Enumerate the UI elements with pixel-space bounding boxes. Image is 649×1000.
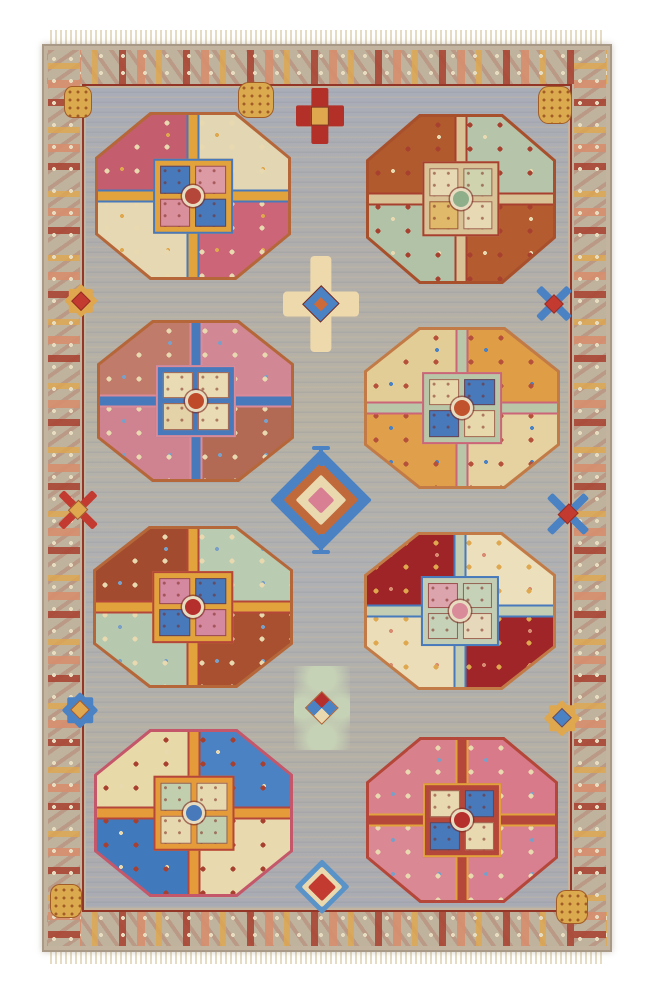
field-motif-x-cross <box>534 284 574 324</box>
hook-tip <box>312 446 330 450</box>
hook-tip <box>312 550 330 554</box>
field-motif-step-diamond <box>285 446 357 554</box>
field-motif-x-cross <box>58 488 98 532</box>
field-motif-step-diamond <box>298 858 346 916</box>
field-motif-dotted-ball <box>556 890 588 924</box>
checker-diamond <box>305 691 339 725</box>
field-motif-x-cross <box>548 490 588 538</box>
field-motif-floral-checker <box>294 666 350 750</box>
motifs-layer <box>0 0 649 1000</box>
field-motif-dotted-ball <box>50 884 82 918</box>
cross-core <box>311 107 329 126</box>
field-motif-dotted-ball <box>538 86 572 124</box>
field-motif-hook-cross <box>283 256 359 352</box>
field-motif-star8 <box>60 280 102 322</box>
rug-photo-scene <box>0 0 649 1000</box>
field-motif-star8 <box>58 688 102 732</box>
field-motif-star8 <box>540 696 584 740</box>
field-motif-dotted-ball <box>238 82 274 118</box>
field-motif-cross <box>296 88 344 144</box>
field-motif-dotted-ball <box>64 86 92 118</box>
